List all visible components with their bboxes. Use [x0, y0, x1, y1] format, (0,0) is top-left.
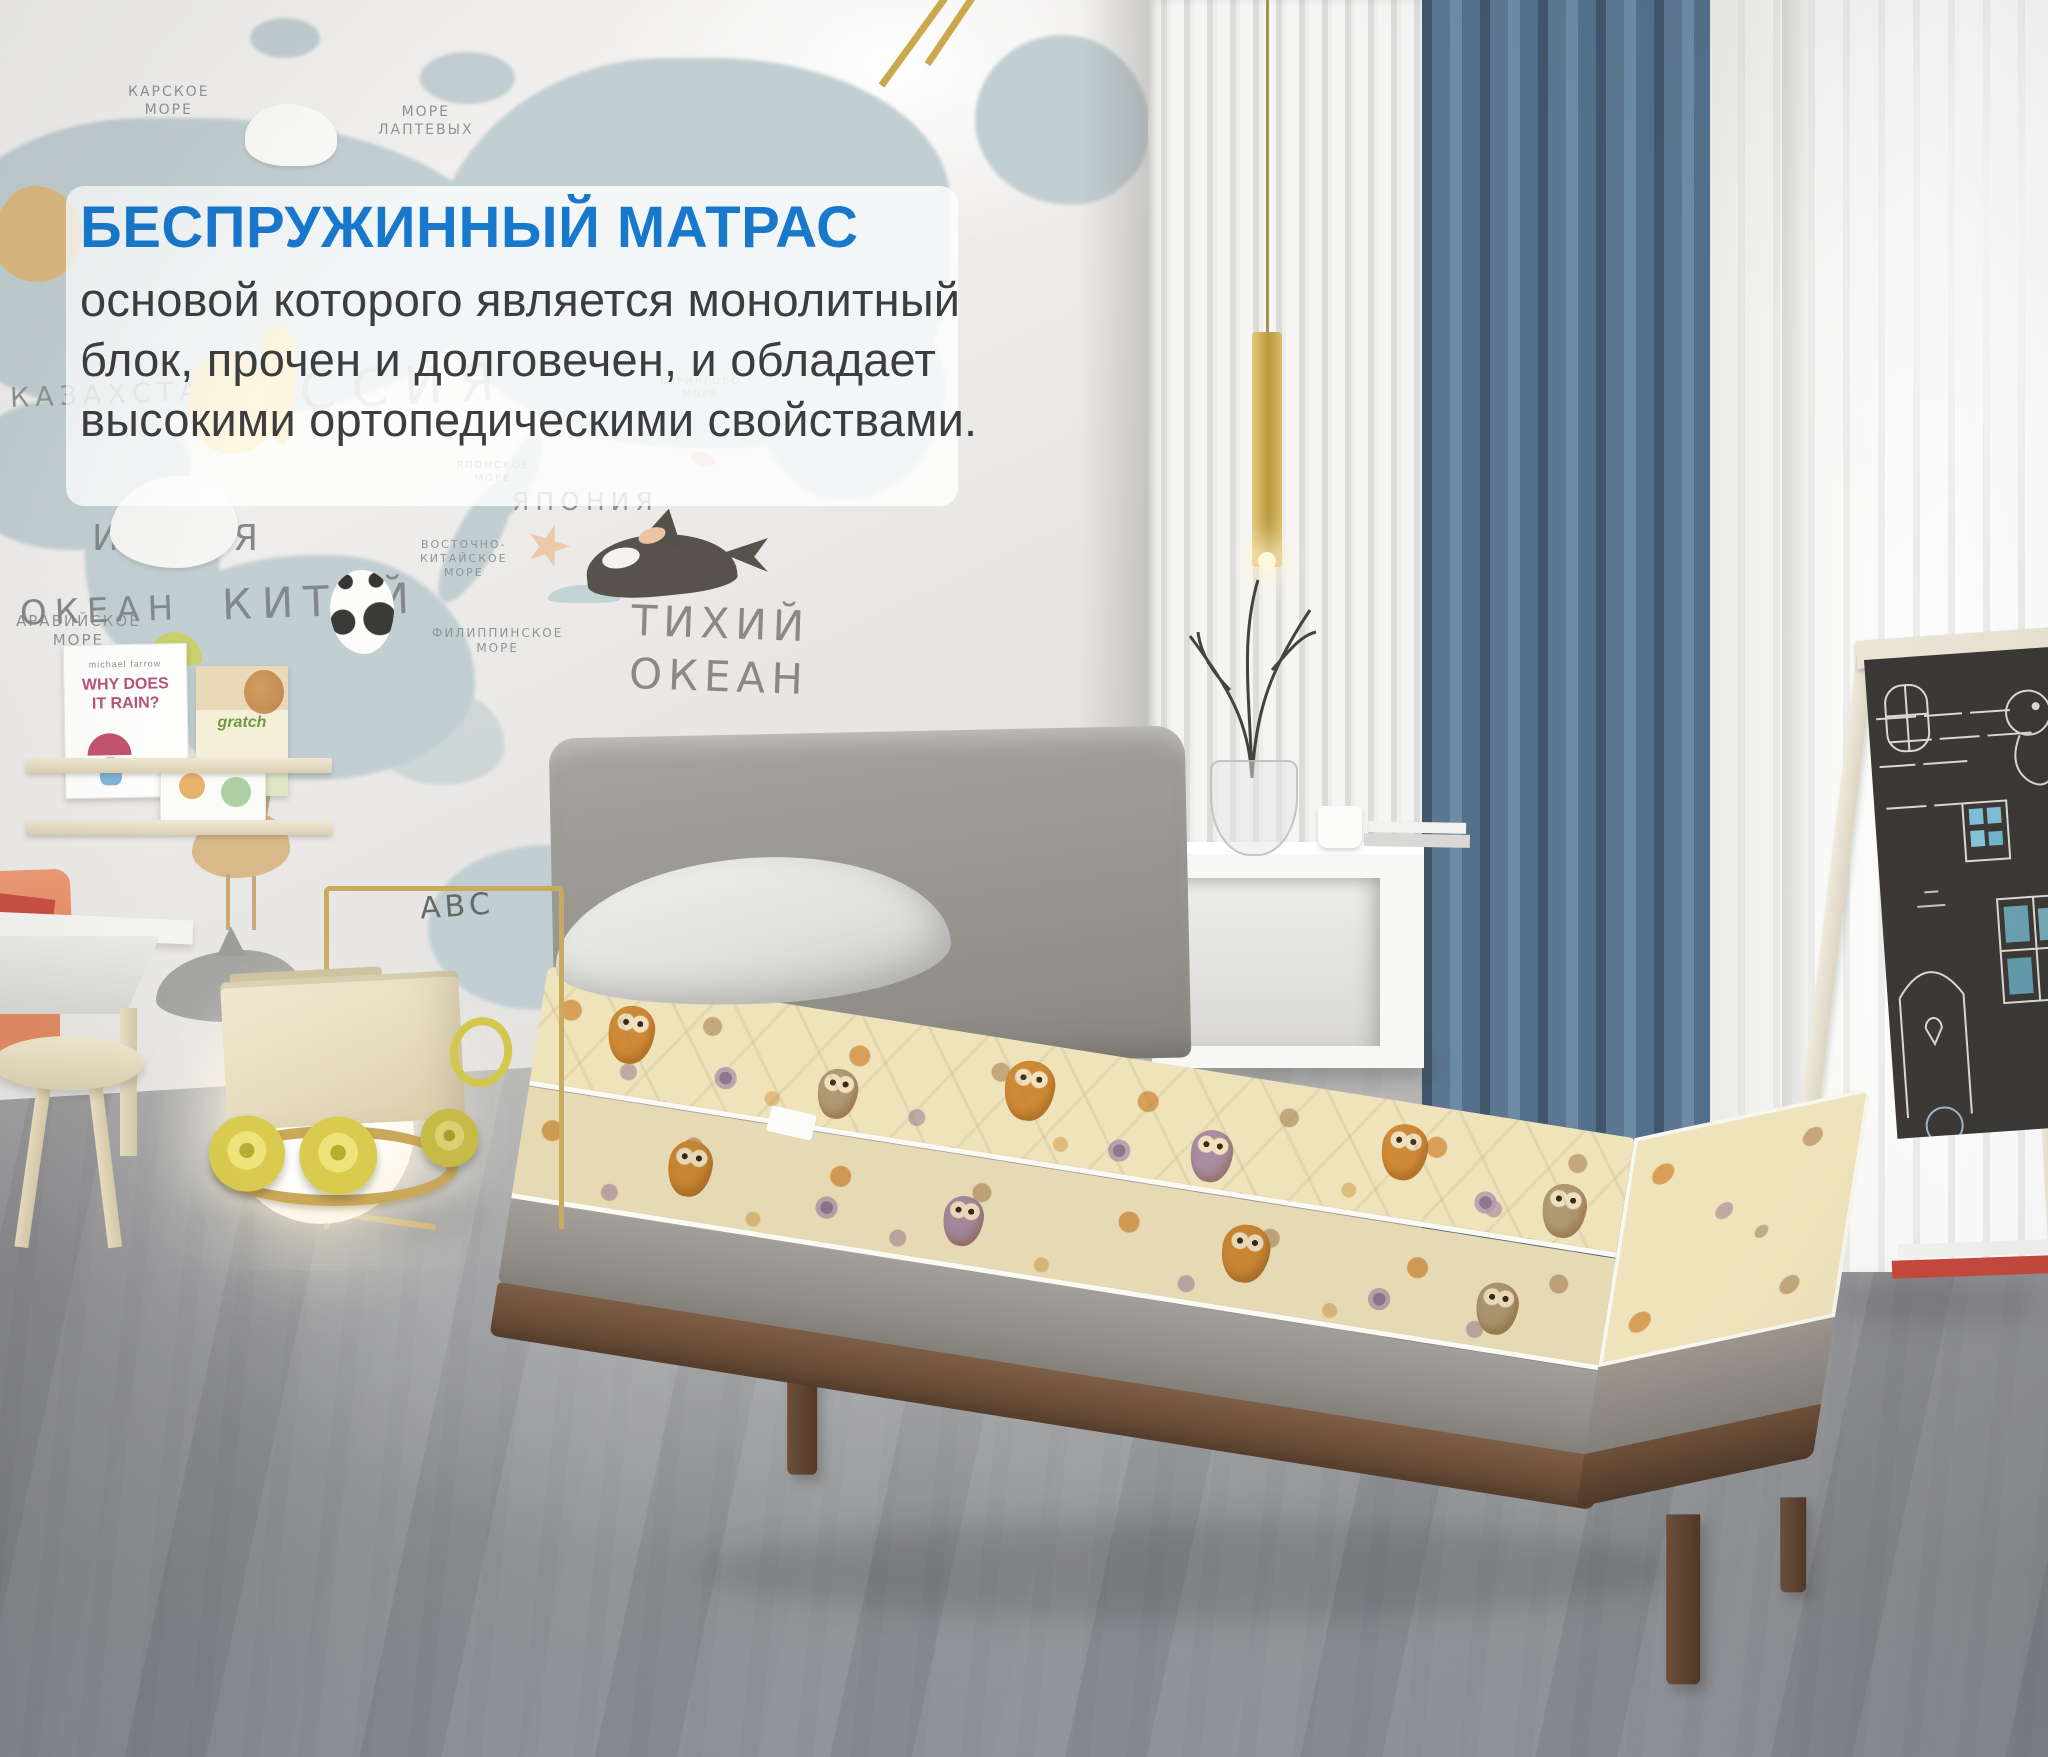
map-landmass — [420, 52, 515, 104]
chalk-drawing — [1864, 646, 2048, 1139]
flower-print — [1364, 1284, 1394, 1314]
body-line-3: высокими ортопедическими свойствами. — [80, 392, 977, 447]
wooden-toy-cart — [190, 960, 513, 1226]
marketing-text-panel: БЕСПРУЖИННЫЙ МАТРАС основой которого явл… — [66, 186, 958, 506]
books-on-nightstand — [1364, 821, 1470, 851]
map-label-okean: ОКЕАН — [19, 587, 182, 635]
orca-illustration — [580, 512, 770, 612]
body-line-1: основой которого является монолитный — [80, 272, 960, 327]
chalkboard-surface — [1864, 646, 2048, 1139]
book-author: michael farrow — [64, 658, 186, 670]
owl-print — [1217, 1221, 1273, 1286]
wall-bookshelf: michael farrow WHY DOES IT RAIN? gratch — [26, 640, 332, 845]
owl-print — [664, 1138, 716, 1200]
flower-print — [711, 1063, 741, 1093]
tree-illustration — [244, 670, 284, 714]
pendant-lamp-cord — [1266, 0, 1269, 335]
owl-print — [1187, 1127, 1237, 1185]
cart-box — [220, 970, 465, 1130]
owl-print — [604, 1003, 659, 1067]
body-line-2: блок, прочен и долговечен, и обладает — [80, 332, 936, 387]
map-landmass — [975, 35, 1150, 205]
owl-print — [940, 1193, 987, 1249]
emu-leg-illustration — [226, 874, 230, 930]
map-label-filippinskoe-more: ФИЛИППИНСКОЕ МОРЕ — [432, 626, 563, 656]
book — [1364, 833, 1470, 848]
map-label-more-laptevyh: МОРЕ ЛАПТЕВЫХ — [378, 104, 474, 139]
map-landmass — [250, 18, 320, 58]
headline: БЕСПРУЖИННЫЙ МАТРАС — [80, 194, 859, 261]
owl-print — [1000, 1057, 1059, 1124]
book-title: gratch — [196, 714, 288, 732]
desk-leg — [120, 1008, 137, 1156]
pendant-lamp-cylinder — [1252, 332, 1282, 567]
nightstand-open-shelf — [1174, 878, 1380, 1046]
shelf-rail — [26, 758, 332, 773]
flower-print — [1471, 1188, 1501, 1218]
book — [1368, 821, 1466, 834]
umbrella-illustration — [87, 733, 131, 756]
bed-leg — [1666, 1514, 1700, 1684]
book-title: WHY DOES IT RAIN? — [64, 674, 187, 714]
map-label-karskoe-more: КАРСКОЕ МОРЕ — [128, 84, 210, 119]
bed-leg — [1780, 1497, 1806, 1592]
owl-print — [814, 1066, 861, 1122]
map-label-vostochno-kitayskoe: ВОСТОЧНО- КИТАЙСКОЕ МОРЕ — [420, 538, 508, 579]
bed-leg — [787, 1375, 817, 1475]
white-cup — [1318, 806, 1362, 848]
owl-print — [1472, 1280, 1522, 1338]
white-nightstand — [1152, 842, 1424, 1068]
flower-print — [1104, 1136, 1134, 1166]
starfish-illustration — [520, 518, 575, 573]
owl-print — [1377, 1121, 1431, 1184]
polar-bear-illustration — [245, 104, 337, 166]
cart-wheel — [297, 1115, 379, 1197]
cover-illustration — [221, 777, 251, 807]
product-photo-scene: КАРСКОЕ МОРЕ МОРЕ ЛАПТЕВЫХ РОССИЯ КАЗАХС… — [0, 0, 2048, 1757]
shelf-rail — [26, 820, 332, 835]
owl-print — [1538, 1181, 1590, 1241]
cover-illustration — [179, 773, 205, 799]
cart-wheel — [419, 1107, 480, 1168]
flower-print — [812, 1193, 842, 1223]
easel-tray-red — [1892, 1255, 2048, 1279]
